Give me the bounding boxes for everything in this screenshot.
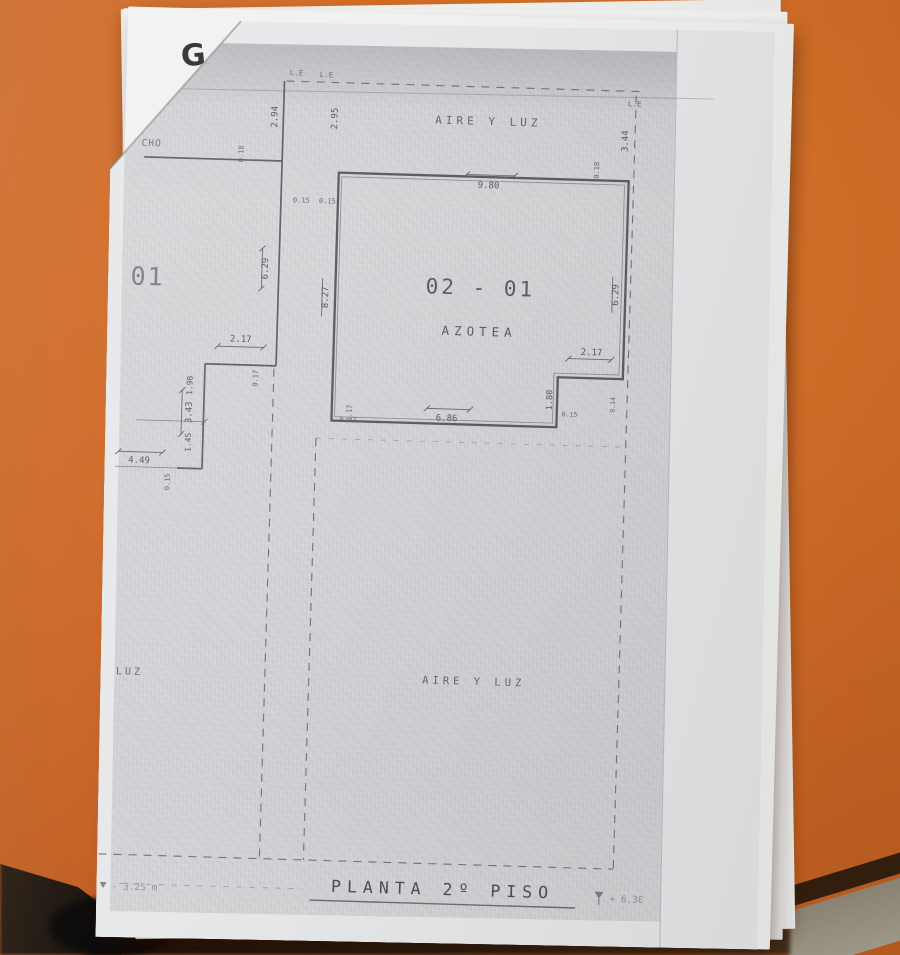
- cut-off-label-cho: CHO: [141, 138, 161, 150]
- dim-2-17-right: 2.17: [581, 348, 603, 359]
- floor-plan-sheet: L.E L.E L.E AIRE Y LUZ 02 - 01 AZOTEA AI…: [95, 19, 775, 950]
- dim-9-80: 9.80: [477, 181, 499, 192]
- room-name-label: AZOTEA: [441, 323, 517, 340]
- airwell-top-label: AIRE Y LUZ: [435, 114, 542, 130]
- dim-0-18-left: 0.18: [237, 145, 245, 162]
- dim-8-27: 8.27: [321, 286, 332, 308]
- dim-6-86: 6.86: [436, 414, 458, 425]
- dim-0-14: 0.14: [609, 397, 617, 413]
- dim-0-18-right: 0.18: [593, 162, 601, 179]
- left-unit-label: 01: [130, 262, 165, 292]
- dim-3-44: 3.44: [621, 130, 632, 152]
- plan-title: PLANTA 2º PISO: [331, 877, 555, 903]
- limit-label-le-2: L.E: [320, 70, 334, 79]
- dim-3-43: 3.43: [184, 401, 195, 423]
- level-mark-icon: [594, 892, 603, 905]
- dim-0-15-a: 0.15: [293, 196, 310, 204]
- floor-plan-drawing: L.E L.E L.E AIRE Y LUZ 02 - 01 AZOTEA AI…: [97, 44, 667, 920]
- dim-0-17: 0.17: [251, 370, 259, 387]
- dim-0-15-c: 0.15: [163, 473, 171, 490]
- level-mark-icon-left: [99, 882, 106, 888]
- dim-4-49: 4.49: [128, 456, 150, 467]
- limit-label-le-1: L.E: [290, 68, 304, 77]
- dim-2-94: 2.94: [270, 106, 281, 128]
- dim-1-45: 1.45: [183, 432, 193, 452]
- dim-2-95: 2.95: [330, 108, 341, 130]
- property-limit-lines: [98, 76, 647, 898]
- dim-0-15-d: 0.15: [562, 410, 578, 418]
- level-value-left: - 3.25 m: [111, 881, 157, 893]
- dim-2-17-small: 2.17: [345, 405, 353, 422]
- dim-1-98: 1.98: [185, 375, 195, 395]
- airwell-bottom-label: AIRE Y LUZ: [422, 674, 526, 689]
- luz-label: LUZ: [116, 666, 143, 678]
- dim-6-29-left: 6.29: [261, 258, 272, 280]
- dim-1-80: 1.80: [545, 390, 556, 411]
- dim-2-17-left: 2.17: [230, 335, 252, 346]
- limit-label-le-3: L.E: [628, 99, 642, 108]
- photo-scene: G: [0, 0, 900, 955]
- room-number-label: 02 - 01: [425, 274, 535, 301]
- dim-0-15-b: 0.15: [319, 197, 336, 205]
- dim-6-29-right: 6.29: [611, 284, 622, 306]
- plan-svg: L.E L.E L.E AIRE Y LUZ 02 - 01 AZOTEA AI…: [97, 44, 667, 920]
